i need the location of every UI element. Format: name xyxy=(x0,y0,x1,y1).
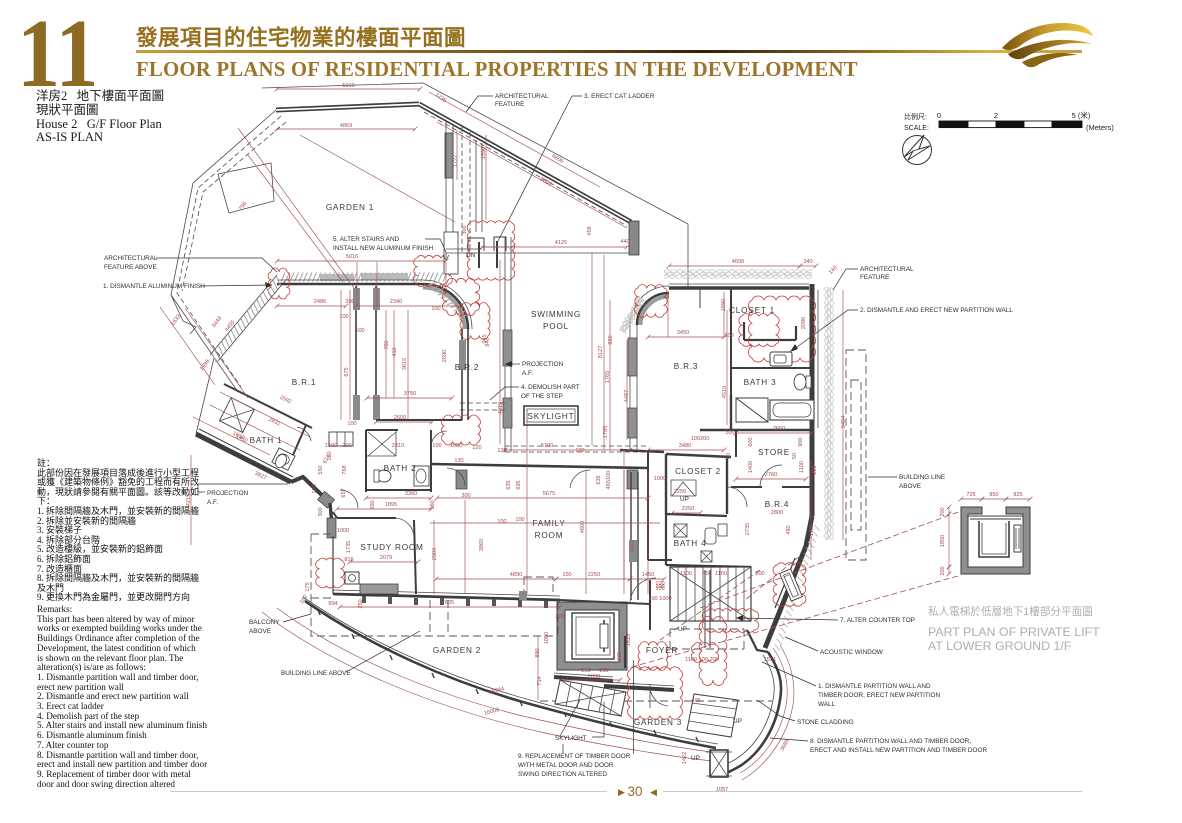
svg-text:1850: 1850 xyxy=(544,632,550,644)
svg-text:3615: 3615 xyxy=(402,358,408,370)
svg-text:825: 825 xyxy=(1013,492,1022,498)
svg-text:100: 100 xyxy=(347,421,356,427)
svg-text:1895: 1895 xyxy=(385,502,397,508)
svg-text:3450: 3450 xyxy=(677,330,689,336)
svg-text:9404: 9404 xyxy=(841,416,847,428)
svg-text:2831: 2831 xyxy=(268,417,282,428)
svg-text:4890: 4890 xyxy=(510,572,522,578)
svg-text:2600: 2600 xyxy=(394,415,406,421)
svg-text:695: 695 xyxy=(516,480,522,489)
svg-text:UP: UP xyxy=(691,755,700,762)
svg-text:B.R.1: B.R.1 xyxy=(292,378,316,387)
svg-text:100: 100 xyxy=(497,519,506,525)
svg-text:200: 200 xyxy=(812,465,818,474)
svg-text:1785: 1785 xyxy=(603,426,609,438)
svg-text:1721: 1721 xyxy=(809,524,815,536)
svg-text:4215: 4215 xyxy=(630,540,636,552)
svg-text:200: 200 xyxy=(555,614,564,620)
svg-text:100: 100 xyxy=(655,581,664,587)
svg-text:175: 175 xyxy=(305,582,311,591)
svg-text:465100: 465100 xyxy=(606,471,612,490)
svg-text:200: 200 xyxy=(940,566,946,575)
svg-text:UP: UP xyxy=(733,718,742,725)
svg-text:440: 440 xyxy=(620,239,629,245)
svg-text:150: 150 xyxy=(562,572,571,578)
svg-text:WALL: WALL xyxy=(818,701,836,708)
svg-text:GARDEN 3: GARDEN 3 xyxy=(634,718,682,727)
svg-text:PROJECTION: PROJECTION xyxy=(522,361,564,368)
svg-text:768: 768 xyxy=(342,465,348,474)
svg-text:150: 150 xyxy=(327,451,333,460)
svg-text:GARDEN 1: GARDEN 1 xyxy=(326,203,374,212)
svg-text:2: 2 xyxy=(994,111,998,120)
svg-text:STORE: STORE xyxy=(758,448,790,457)
svg-text:16008: 16008 xyxy=(483,707,500,717)
svg-text:INSTALL NEW ALUMINUM FINISH: INSTALL NEW ALUMINUM FINISH xyxy=(333,245,434,252)
svg-text:458: 458 xyxy=(587,226,593,235)
svg-text:950: 950 xyxy=(370,500,376,509)
svg-text:4015: 4015 xyxy=(498,402,504,414)
svg-text:1. DISMANTLE ALUMINUM FINISH: 1. DISMANTLE ALUMINUM FINISH xyxy=(103,283,205,290)
svg-text:比例尺:: 比例尺: xyxy=(904,112,927,121)
svg-text:FEATURE: FEATURE xyxy=(495,101,524,108)
svg-text:2800: 2800 xyxy=(771,510,783,516)
svg-text:2250: 2250 xyxy=(588,572,600,578)
svg-text:SKYLIGHT: SKYLIGHT xyxy=(528,412,575,421)
svg-text:ARCHITECTURAL: ARCHITECTURAL xyxy=(104,255,158,262)
svg-text:635: 635 xyxy=(506,480,512,489)
svg-text:60: 60 xyxy=(726,453,732,459)
svg-text:200: 200 xyxy=(599,668,608,674)
svg-text:5. ALTER STAIRS AND: 5. ALTER STAIRS AND xyxy=(333,236,400,243)
svg-text:A.F.: A.F. xyxy=(522,370,533,377)
svg-text:1500: 1500 xyxy=(325,443,337,449)
svg-text:ABOVE: ABOVE xyxy=(899,483,921,490)
svg-text:1. DISMANTLE PARTITION WALL AN: 1. DISMANTLE PARTITION WALL AND xyxy=(818,683,931,690)
svg-text:5675: 5675 xyxy=(543,491,555,497)
svg-text:4. DEMOLISH PART: 4. DEMOLISH PART xyxy=(521,384,580,391)
svg-text:850: 850 xyxy=(989,492,998,498)
svg-text:3360: 3360 xyxy=(405,491,417,497)
svg-text:300: 300 xyxy=(725,430,734,436)
svg-text:600: 600 xyxy=(748,437,754,446)
svg-text:UP: UP xyxy=(678,626,687,633)
svg-text:9. REPLACEMENT OF TIMBER DOOR: 9. REPLACEMENT OF TIMBER DOOR xyxy=(518,753,631,760)
svg-text:SCALE:: SCALE: xyxy=(904,125,929,132)
svg-text:550: 550 xyxy=(318,465,324,474)
svg-text:CLOSET 1: CLOSET 1 xyxy=(729,306,775,315)
svg-text:960: 960 xyxy=(430,500,436,509)
svg-text:200: 200 xyxy=(940,507,946,516)
svg-text:1400: 1400 xyxy=(748,461,754,473)
svg-text:4600: 4600 xyxy=(580,521,586,533)
svg-text:1000: 1000 xyxy=(654,476,666,482)
svg-text:FEATURE: FEATURE xyxy=(860,274,889,281)
svg-text:2090: 2090 xyxy=(801,317,807,329)
svg-text:100200: 100200 xyxy=(691,436,710,442)
svg-text:5700: 5700 xyxy=(541,443,553,449)
svg-text:3685: 3685 xyxy=(779,739,790,753)
svg-text:BATH 2: BATH 2 xyxy=(384,464,417,473)
svg-text:BALCONY: BALCONY xyxy=(249,619,280,626)
svg-text:1727: 1727 xyxy=(453,155,459,167)
svg-text:ERECT AND INSTALL NEW PARTITIO: ERECT AND INSTALL NEW PARTITION AND TIMB… xyxy=(810,747,987,754)
svg-text:150: 150 xyxy=(312,484,318,493)
svg-text:2250: 2250 xyxy=(682,506,694,512)
svg-text:3480: 3480 xyxy=(679,443,691,449)
svg-text:3448: 3448 xyxy=(211,316,223,330)
svg-text:1551: 1551 xyxy=(764,657,776,663)
svg-text:2079: 2079 xyxy=(380,555,392,561)
svg-text:300: 300 xyxy=(462,225,468,234)
svg-text:885: 885 xyxy=(608,335,614,344)
svg-text:1057: 1057 xyxy=(716,787,728,793)
svg-text:1735: 1735 xyxy=(346,541,352,553)
svg-text:100: 100 xyxy=(432,443,441,449)
svg-text:ACOUSTIC WINDOW: ACOUSTIC WINDOW xyxy=(820,649,884,656)
svg-text:495: 495 xyxy=(691,698,700,704)
svg-text:1080: 1080 xyxy=(450,443,462,449)
svg-text:100: 100 xyxy=(431,306,440,312)
svg-text:FOYER: FOYER xyxy=(646,646,678,655)
svg-text:450: 450 xyxy=(702,571,711,577)
svg-text:100: 100 xyxy=(355,328,364,334)
svg-text:ABOVE: ABOVE xyxy=(249,628,271,635)
svg-text:2250: 2250 xyxy=(674,489,686,495)
svg-text:UP: UP xyxy=(680,496,689,503)
svg-text:SWING DIRECTION ALTERED: SWING DIRECTION ALTERED xyxy=(518,771,607,778)
svg-text:250: 250 xyxy=(581,668,590,674)
svg-text:CLOSET 2: CLOSET 2 xyxy=(675,467,721,476)
svg-text:7. ALTER COUNTER TOP: 7. ALTER COUNTER TOP xyxy=(840,617,915,624)
svg-text:4456: 4456 xyxy=(224,320,236,334)
svg-text:140: 140 xyxy=(828,265,839,276)
svg-text:1150: 1150 xyxy=(715,571,727,577)
svg-text:635: 635 xyxy=(596,475,602,484)
svg-text:FAMILY: FAMILY xyxy=(532,519,565,528)
svg-text:657: 657 xyxy=(341,488,347,497)
svg-text:A.F.: A.F. xyxy=(207,499,218,506)
svg-text:1422: 1422 xyxy=(682,752,688,764)
svg-text:130: 130 xyxy=(575,448,584,454)
svg-text:BATH 4: BATH 4 xyxy=(674,539,707,548)
svg-text:120: 120 xyxy=(497,448,506,454)
svg-text:2340: 2340 xyxy=(390,299,402,305)
svg-text:BATH 1: BATH 1 xyxy=(250,436,283,445)
svg-text:100: 100 xyxy=(515,517,524,523)
svg-text:(Meters): (Meters) xyxy=(1086,123,1114,132)
svg-text:1825: 1825 xyxy=(617,651,623,663)
svg-text:STONE CLADDING: STONE CLADDING xyxy=(797,719,854,726)
svg-text:2650: 2650 xyxy=(773,426,785,432)
svg-text:940: 940 xyxy=(485,337,491,346)
svg-text:675: 675 xyxy=(344,367,350,376)
svg-text:460: 460 xyxy=(786,525,792,534)
svg-text:2486: 2486 xyxy=(314,299,326,305)
svg-text:4869: 4869 xyxy=(340,123,352,129)
svg-text:1100: 1100 xyxy=(799,461,805,473)
svg-text:340: 340 xyxy=(803,259,812,265)
svg-text:3. ERECT CAT LADDER: 3. ERECT CAT LADDER xyxy=(584,93,655,100)
svg-text:300: 300 xyxy=(318,507,324,516)
svg-text:5 (米): 5 (米) xyxy=(1072,110,1091,120)
svg-text:250: 250 xyxy=(358,599,364,608)
svg-text:PROJECTION: PROJECTION xyxy=(207,490,249,497)
svg-text:BATH 3: BATH 3 xyxy=(744,378,777,387)
svg-text:900: 900 xyxy=(798,437,804,446)
svg-text:1850: 1850 xyxy=(940,535,946,547)
svg-text:4125: 4125 xyxy=(555,240,567,246)
svg-text:BUILDING LINE: BUILDING LINE xyxy=(899,474,945,481)
svg-text:TIMBER DOOR, ERECT NEW PARTITI: TIMBER DOOR, ERECT NEW PARTITION xyxy=(818,692,941,699)
svg-text:2900: 2900 xyxy=(432,548,438,560)
svg-text:3750: 3750 xyxy=(404,391,416,397)
svg-text:SKYLIGHT: SKYLIGHT xyxy=(555,735,587,742)
svg-text:POOL: POOL xyxy=(543,322,569,331)
svg-text:B.R.3: B.R.3 xyxy=(674,362,698,371)
svg-text:B.R.2: B.R.2 xyxy=(455,363,479,372)
svg-text:1100: 1100 xyxy=(680,571,692,577)
svg-text:2090: 2090 xyxy=(588,674,600,680)
svg-text:100: 100 xyxy=(724,333,733,339)
svg-text:1825: 1825 xyxy=(626,634,632,646)
svg-text:2735: 2735 xyxy=(745,523,751,535)
svg-text:2690: 2690 xyxy=(442,350,448,362)
svg-text:2. DISMANTLE AND ERECT NEW PAR: 2. DISMANTLE AND ERECT NEW PARTITION WAL… xyxy=(860,307,1013,314)
svg-text:3865: 3865 xyxy=(479,539,485,551)
svg-text:ARCHITECTURAL: ARCHITECTURAL xyxy=(860,266,914,273)
svg-text:100: 100 xyxy=(339,314,348,320)
svg-text:GARDEN 2: GARDEN 2 xyxy=(433,646,481,655)
svg-text:2592: 2592 xyxy=(279,395,293,406)
svg-text:B.R.4: B.R.4 xyxy=(765,500,789,509)
svg-text:5010: 5010 xyxy=(342,83,354,89)
svg-text:756: 756 xyxy=(238,201,248,212)
svg-text:1000: 1000 xyxy=(337,528,349,534)
svg-text:FEATURE ABOVE: FEATURE ABOVE xyxy=(104,264,157,271)
svg-text:4606: 4606 xyxy=(732,259,744,265)
svg-text:WITH METAL DOOR AND DOOR: WITH METAL DOOR AND DOOR xyxy=(518,762,614,769)
svg-text:ARCHITECTURAL: ARCHITECTURAL xyxy=(495,93,549,100)
svg-text:7635: 7635 xyxy=(442,600,454,606)
svg-text:8127: 8127 xyxy=(598,346,604,358)
svg-text:ROOM: ROOM xyxy=(535,531,564,540)
svg-text:894: 894 xyxy=(328,601,337,607)
svg-text:120: 120 xyxy=(472,445,481,451)
svg-text:BUILDING LINE ABOVE: BUILDING LINE ABOVE xyxy=(281,670,351,677)
svg-text:50: 50 xyxy=(792,453,798,459)
svg-text:410: 410 xyxy=(392,347,398,356)
svg-text:725: 725 xyxy=(966,492,975,498)
svg-text:8. DISMANTLE PARTITION WALL AN: 8. DISMANTLE PARTITION WALL AND TIMBER D… xyxy=(810,738,971,745)
svg-text:5016: 5016 xyxy=(346,254,358,260)
svg-text:2760: 2760 xyxy=(765,472,777,478)
svg-text:STUDY ROOM: STUDY ROOM xyxy=(360,543,423,552)
svg-text:SWIMMING: SWIMMING xyxy=(531,310,581,319)
svg-text:1100 100 200: 1100 100 200 xyxy=(685,657,719,663)
svg-text:300: 300 xyxy=(461,493,470,499)
svg-text:2310: 2310 xyxy=(392,443,404,449)
svg-text:3927: 3927 xyxy=(254,471,268,482)
svg-text:130: 130 xyxy=(454,458,463,464)
svg-text:0: 0 xyxy=(937,111,941,120)
svg-text:100 1000: 100 1000 xyxy=(648,596,671,602)
svg-text:OF THE STEP: OF THE STEP xyxy=(521,393,563,400)
svg-text:760: 760 xyxy=(384,340,390,349)
svg-text:200: 200 xyxy=(342,443,351,449)
